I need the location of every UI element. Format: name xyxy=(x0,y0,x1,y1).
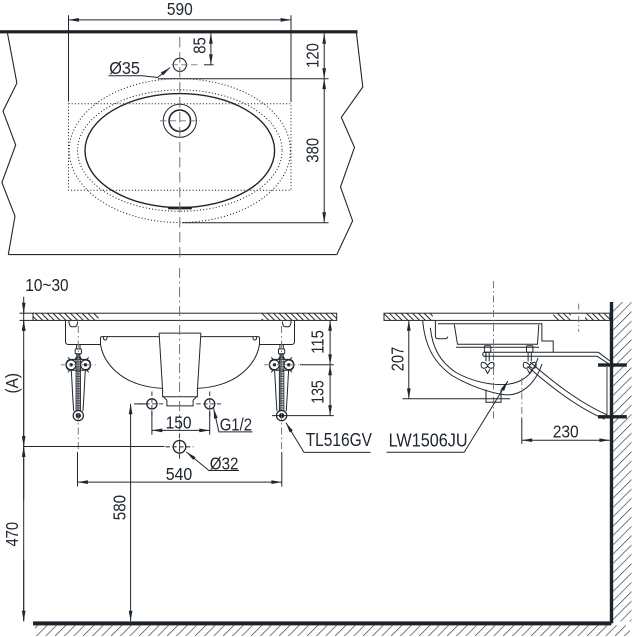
svg-text:150: 150 xyxy=(166,412,192,432)
svg-text:Ø35: Ø35 xyxy=(109,58,140,78)
svg-text:(A): (A) xyxy=(2,373,22,394)
svg-text:590: 590 xyxy=(167,0,193,19)
svg-text:470: 470 xyxy=(2,522,22,547)
svg-text:207: 207 xyxy=(387,347,407,372)
svg-text:540: 540 xyxy=(166,464,193,484)
svg-text:580: 580 xyxy=(109,495,129,520)
svg-text:LW1506JU: LW1506JU xyxy=(389,430,468,451)
svg-text:120: 120 xyxy=(303,43,323,68)
svg-text:135: 135 xyxy=(307,380,327,404)
svg-text:10~30: 10~30 xyxy=(25,275,68,295)
svg-text:85: 85 xyxy=(189,37,209,54)
svg-text:TL516GV: TL516GV xyxy=(306,429,373,450)
svg-text:230: 230 xyxy=(553,422,579,442)
svg-text:380: 380 xyxy=(303,138,323,163)
svg-text:115: 115 xyxy=(307,330,327,354)
